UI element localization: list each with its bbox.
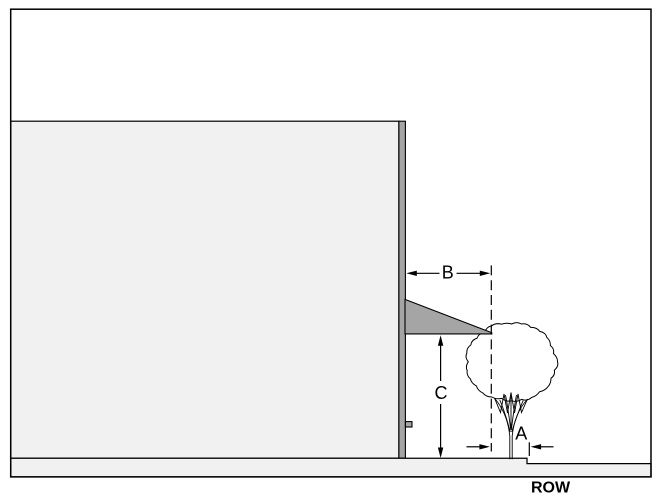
svg-text:B: B [442, 263, 454, 283]
svg-text:C: C [435, 383, 448, 403]
svg-text:A: A [515, 424, 527, 444]
svg-text:ROW: ROW [531, 480, 571, 497]
